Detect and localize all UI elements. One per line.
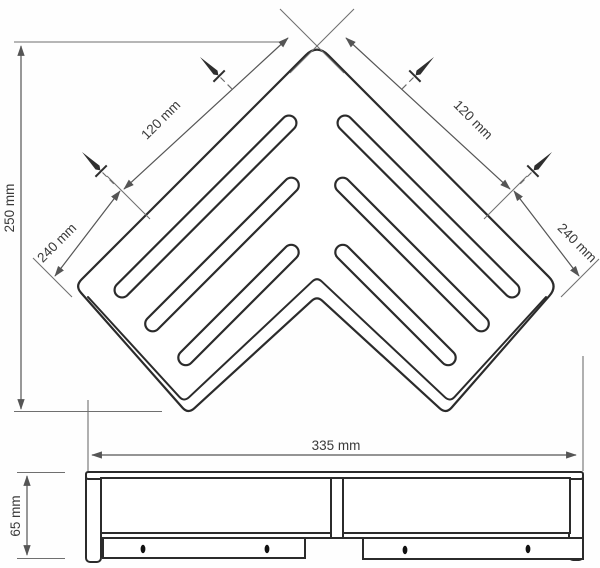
mounting-hole (403, 546, 408, 554)
dimension-label: 65 mm (8, 495, 23, 536)
mounting-bracket-left (103, 538, 305, 558)
basket-outline (78, 50, 553, 411)
left-side-wall (86, 472, 101, 562)
side-profile (86, 472, 583, 562)
dimension-250mm: 250 mm (2, 46, 21, 409)
screw-icon (513, 146, 558, 191)
top-view: 250 mm 120 mm 240 mm 120 mm 240 mm (2, 9, 600, 412)
dimension-335mm: 335 mm (92, 438, 576, 455)
dimension-65mm: 65 mm (8, 476, 27, 555)
center-divider (331, 478, 343, 538)
mounting-hole (526, 545, 531, 553)
dimension-label: 240 mm (34, 220, 79, 265)
dimension-label: 335 mm (312, 438, 361, 453)
dimension-label: 250 mm (2, 184, 17, 233)
dimension-label: 120 mm (138, 97, 183, 142)
side-view: 335 mm 65 mm (8, 356, 583, 562)
mounting-hole (141, 545, 146, 553)
screw-icon (76, 146, 121, 191)
dimension-label: 240 mm (555, 220, 600, 265)
mounting-hole (265, 545, 270, 553)
technical-drawing-page: 250 mm 120 mm 240 mm 120 mm 240 mm (0, 0, 600, 568)
dimension-label: 120 mm (451, 97, 496, 142)
technical-drawing: 250 mm 120 mm 240 mm 120 mm 240 mm (0, 0, 600, 568)
mounting-bracket-right (363, 538, 583, 559)
